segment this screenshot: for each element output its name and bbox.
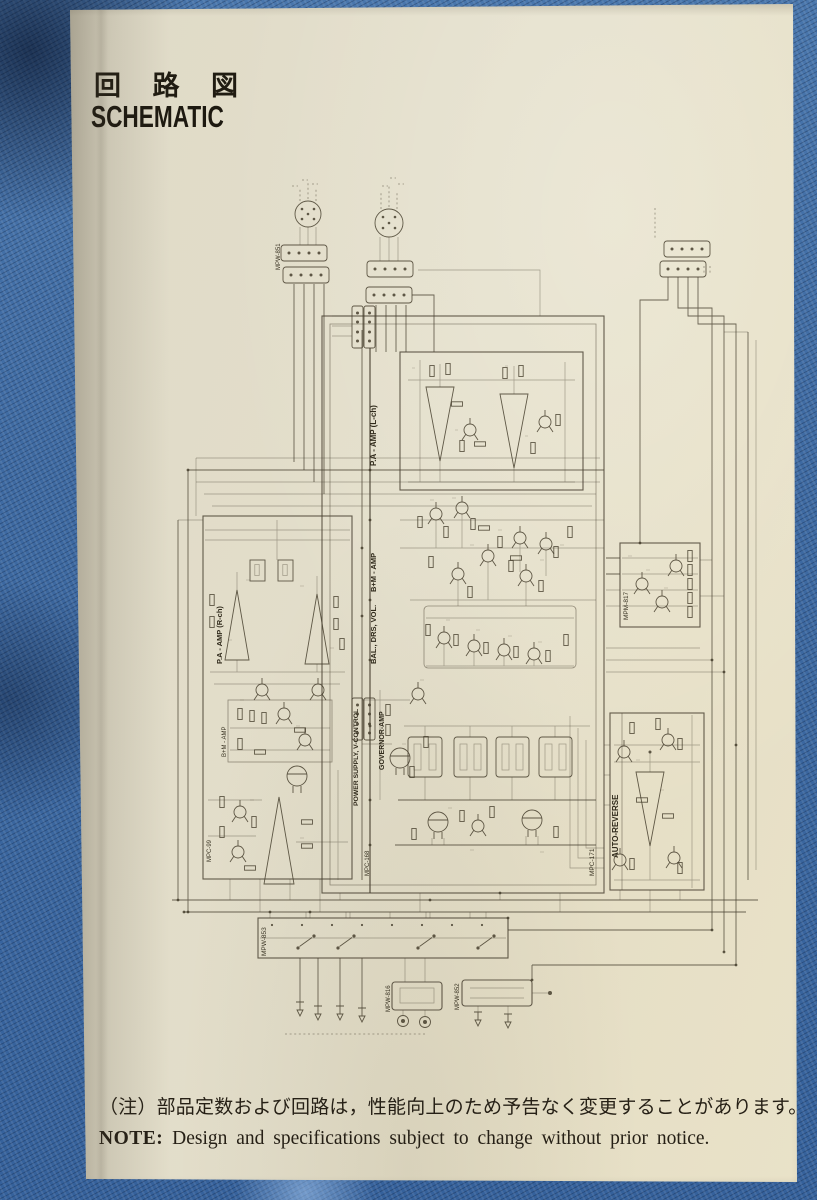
label-b-m-amp: B+M - AMP	[369, 553, 378, 592]
label-b-m-amp-r: B+M - AMP	[222, 726, 228, 757]
schematic-diagram: P.A - AMP (L-ch) B+M - AMP BAL., DRS, VO…	[0, 0, 817, 1200]
label-mpc-171: MPC-171	[589, 848, 596, 876]
photo-scene: 回 路 図 SCHEMATIC	[0, 0, 817, 1200]
label-pa-amp-r: P.A - AMP (R-ch)	[215, 606, 224, 664]
label-pa-amp-l: P.A - AMP (L-ch)	[369, 405, 378, 466]
junction-dots	[177, 469, 738, 995]
label-mpc-99: MPC-99	[207, 839, 213, 862]
label-bal-drs-vol: BAL., DRS, VOL.	[369, 605, 378, 664]
footnote-english-text: Design and specifications subject to cha…	[172, 1128, 709, 1149]
label-mpc-168: MPC-168	[365, 850, 371, 876]
footnote-english-label: NOTE:	[99, 1128, 163, 1149]
label-auto-reverse: AUTO-REVERSE	[611, 794, 620, 858]
board-outlines	[203, 316, 704, 1010]
label-mpw-851: MPW-851	[276, 243, 282, 270]
minor-wires	[178, 227, 756, 1016]
top-connectors	[281, 201, 710, 740]
label-mpw-816: MPW-816	[386, 985, 392, 1012]
label-governor-amp: GOVERNOR-AMP	[379, 711, 386, 770]
label-mpw-853: MPW-853	[261, 927, 268, 956]
label-mpm-817: MPM-817	[623, 591, 630, 620]
manual-page: 回 路 図 SCHEMATIC	[0, 0, 817, 1200]
footnote-english: NOTE: Design and specifications subject …	[99, 1128, 759, 1150]
label-mpw-852: MPW-852	[455, 983, 461, 1010]
components	[210, 364, 692, 1029]
schematic-labels: P.A - AMP (L-ch) B+M - AMP BAL., DRS, VO…	[207, 243, 630, 1012]
footnote-japanese: （注）部品定数および回路は，性能向上のため予告なく変更することがあります。	[99, 1092, 759, 1119]
footnote-block: （注）部品定数および回路は，性能向上のため予告なく変更することがあります。 NO…	[99, 1092, 759, 1150]
label-power-supply: POWER SUPPLY, V-CONTROL	[353, 709, 360, 806]
